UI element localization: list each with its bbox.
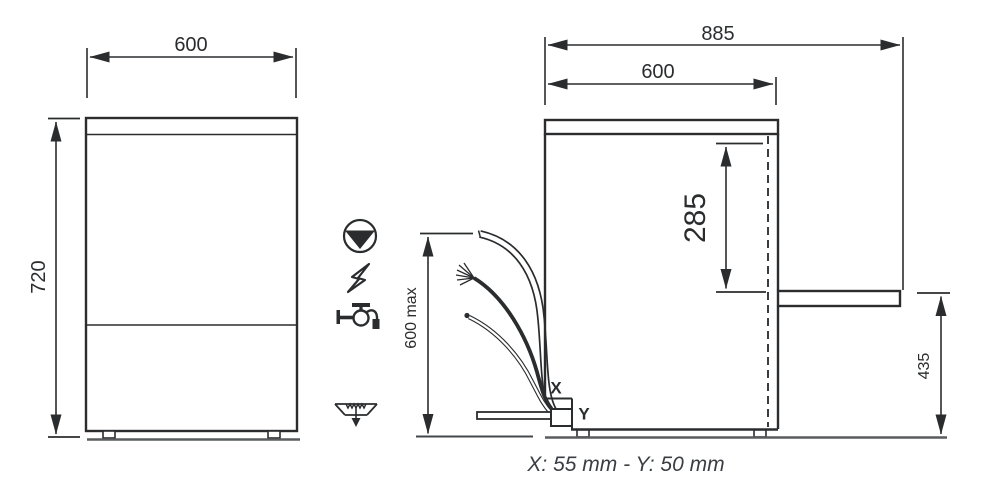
floor-drain-pipe <box>477 412 553 419</box>
door-offset-label: 285 <box>679 193 712 243</box>
utility-icons <box>335 220 380 427</box>
lightning-icon <box>348 264 369 292</box>
door-height-label: 435 <box>916 353 933 380</box>
side-body-depth-label: 600 <box>641 61 674 83</box>
hose-max-height-label: 600 max <box>403 287 420 348</box>
connection-x-label: X <box>550 379 562 398</box>
open-door-slab <box>778 291 900 306</box>
xy-footnote: X: 55 mm - Y: 50 mm <box>526 453 724 476</box>
front-height-dimension: 720 <box>28 119 80 438</box>
water-tap-icon <box>337 305 380 329</box>
front-height-label: 720 <box>28 260 50 293</box>
cable-frayed-wires <box>456 263 474 285</box>
drain-pump-icon <box>344 220 376 252</box>
side-cabinet: X Y <box>545 120 900 437</box>
connection-box <box>551 409 572 426</box>
front-width-dimension: 600 <box>87 34 296 98</box>
connection-hoses <box>456 231 554 420</box>
door-height-dimension: 435 <box>916 293 950 434</box>
door-offset-dimension: 285 <box>679 144 766 293</box>
floor-drain-icon <box>335 404 377 427</box>
front-cabinet-outline <box>86 118 297 431</box>
side-view: 885 600 <box>456 23 950 438</box>
diagram-canvas: 600 720 <box>0 0 989 504</box>
front-right-foot <box>268 431 280 438</box>
side-total-depth-label: 885 <box>701 23 734 45</box>
side-right-foot <box>754 430 766 437</box>
technical-diagram: 600 720 <box>0 0 989 504</box>
side-total-depth-dimension: 885 <box>545 23 903 290</box>
hose-height-dimension: 600 max <box>403 234 533 437</box>
connection-y-label: Y <box>578 405 590 424</box>
front-view: 600 720 <box>28 34 300 440</box>
front-left-foot <box>103 431 115 438</box>
side-top-band <box>545 120 778 134</box>
side-body-depth-dimension: 600 <box>548 61 776 105</box>
front-width-label: 600 <box>174 34 207 56</box>
side-left-foot <box>577 430 589 437</box>
hose-connector <box>464 313 469 318</box>
